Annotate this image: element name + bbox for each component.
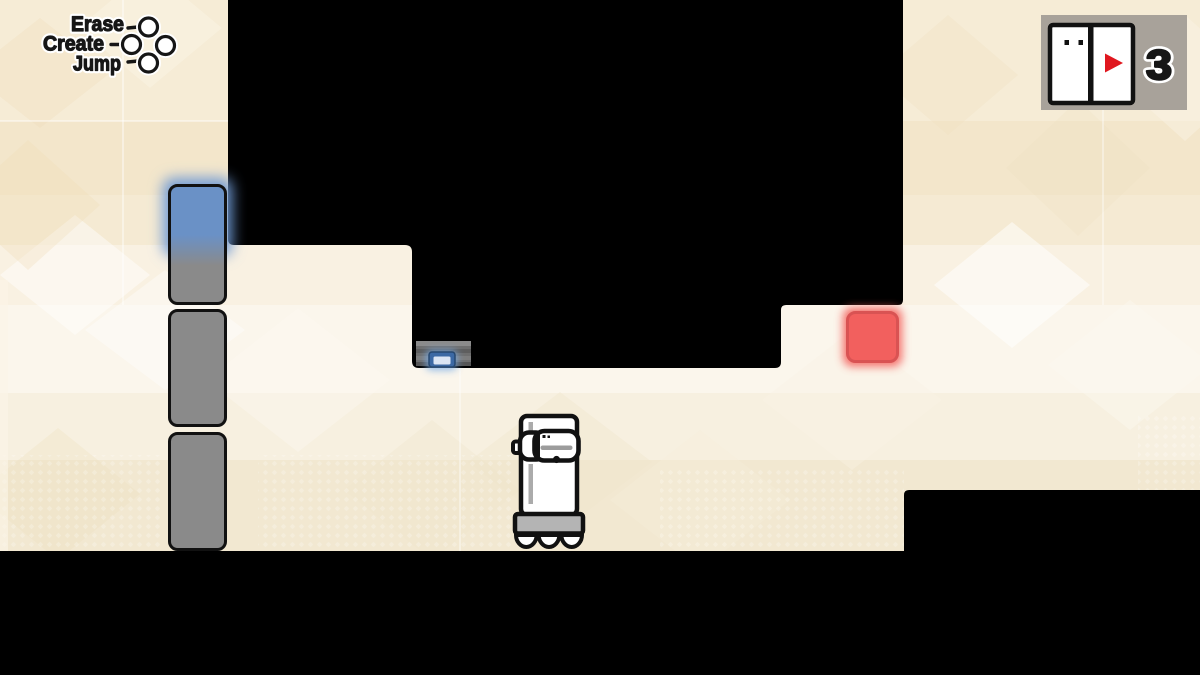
svg-text:Jump: Jump [73,53,121,76]
svg-text:3: 3 [1146,41,1172,88]
